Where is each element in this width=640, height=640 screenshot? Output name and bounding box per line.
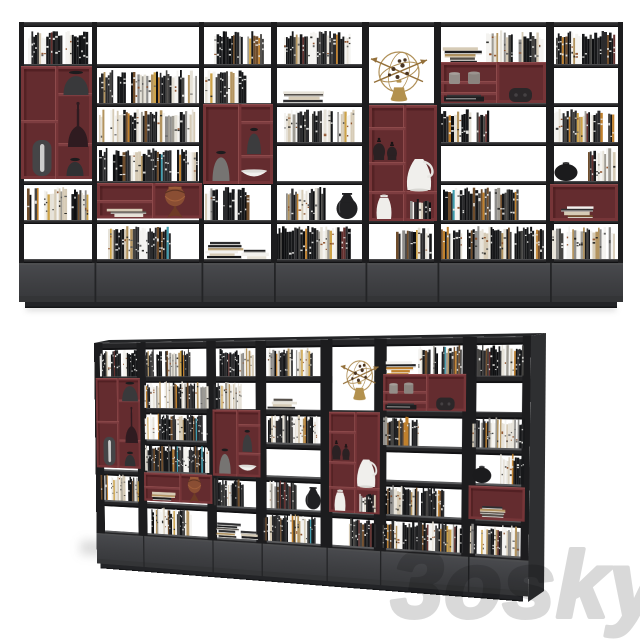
svg-text:3osky: 3osky [391, 532, 640, 637]
